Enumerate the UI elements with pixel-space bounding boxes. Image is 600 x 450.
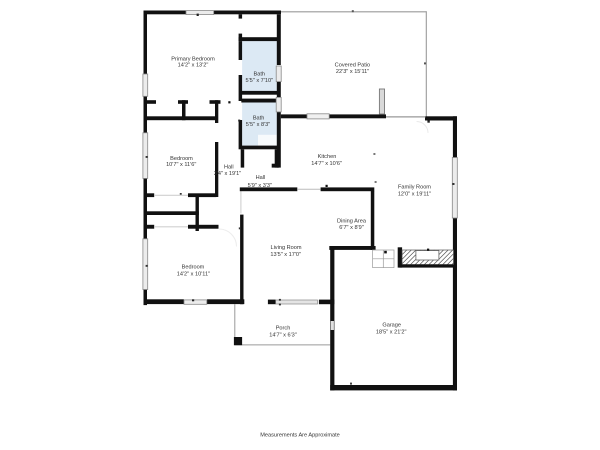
- svg-text:12'0" x 19'11": 12'0" x 19'11": [398, 191, 431, 197]
- svg-text:Hall: Hall: [256, 175, 266, 181]
- svg-text:Bath: Bath: [253, 116, 265, 122]
- svg-text:10'7" x 11'6": 10'7" x 11'6": [166, 162, 196, 168]
- svg-text:3'4" x 19'1": 3'4" x 19'1": [214, 171, 242, 177]
- svg-text:Hall: Hall: [224, 164, 234, 170]
- svg-text:18'5" x 21'2": 18'5" x 21'2": [376, 330, 407, 336]
- svg-text:22'3" x 15'11": 22'3" x 15'11": [336, 69, 369, 75]
- svg-text:6'7" x 8'9": 6'7" x 8'9": [339, 225, 363, 231]
- svg-text:Kitchen: Kitchen: [318, 154, 337, 160]
- svg-text:Covered Patio: Covered Patio: [335, 63, 370, 69]
- svg-text:Porch: Porch: [276, 326, 291, 332]
- svg-text:14'7" x 6'3": 14'7" x 6'3": [269, 332, 297, 338]
- svg-text:14'7" x 10'6": 14'7" x 10'6": [311, 161, 342, 167]
- svg-text:Garage: Garage: [382, 323, 401, 329]
- svg-text:5'5" x 8'3": 5'5" x 8'3": [246, 122, 270, 128]
- svg-text:Bath: Bath: [254, 72, 266, 78]
- svg-text:14'2" x 10'11": 14'2" x 10'11": [177, 271, 210, 277]
- svg-text:5'9" x 3'3": 5'9" x 3'3": [248, 183, 272, 189]
- svg-text:14'2" x 13'2": 14'2" x 13'2": [178, 63, 209, 69]
- svg-text:Bedroom: Bedroom: [170, 156, 193, 162]
- svg-text:5'5" x 7'10": 5'5" x 7'10": [246, 78, 274, 84]
- svg-text:Family Room: Family Room: [398, 185, 431, 191]
- svg-text:Primary Bedroom: Primary Bedroom: [171, 57, 215, 63]
- svg-text:Bedroom: Bedroom: [182, 265, 205, 271]
- svg-text:Measurements Are Approximate: Measurements Are Approximate: [260, 433, 340, 439]
- svg-text:Dining Area: Dining Area: [337, 219, 367, 225]
- svg-text:13'5" x 17'0": 13'5" x 17'0": [270, 252, 301, 258]
- svg-text:Living Room: Living Room: [270, 245, 301, 251]
